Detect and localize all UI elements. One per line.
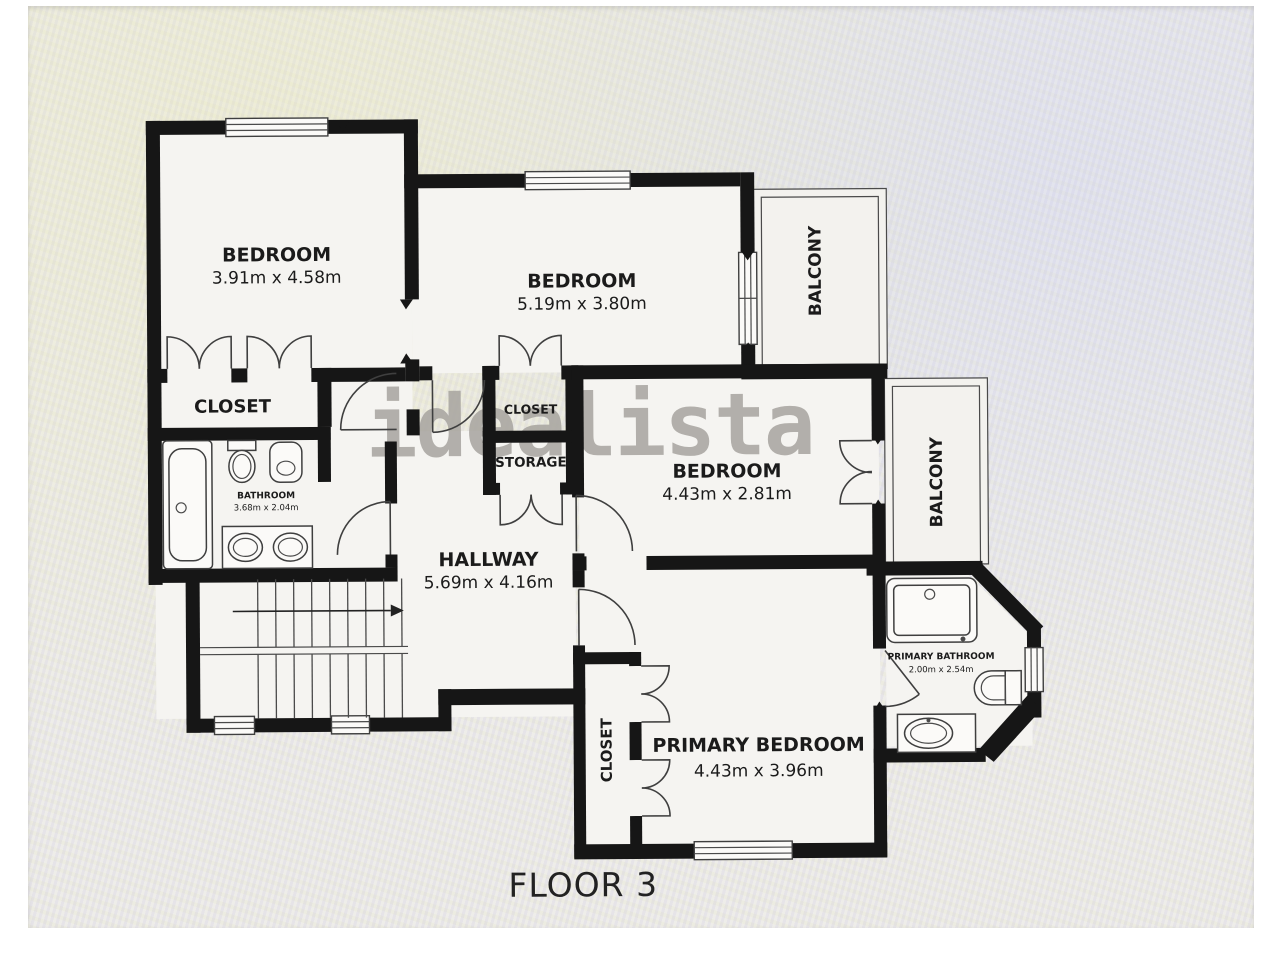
- room-dims-primary-bathroom: 2.00m x 2.54m: [909, 665, 974, 675]
- wall: [630, 172, 740, 187]
- stair-direction-line: [233, 611, 391, 612]
- wall: [573, 570, 585, 587]
- wall: [482, 366, 499, 380]
- room-dims-bedroom1: 3.91m x 4.58m: [212, 268, 342, 289]
- room-label-hallway: HALLWAY: [438, 549, 538, 572]
- wall: [438, 688, 585, 705]
- wall: [254, 718, 331, 732]
- room-label-balcony-top: BALCONY: [805, 225, 826, 316]
- toilet-tank: [228, 440, 256, 450]
- floor-caption: FLOOR 3: [508, 865, 658, 905]
- bathtub-inner: [169, 449, 207, 561]
- room-label-balcony-right: BALCONY: [927, 436, 948, 527]
- wall: [572, 556, 586, 570]
- wall: [1027, 625, 1041, 650]
- wall: [571, 365, 584, 497]
- wall: [231, 368, 247, 382]
- wall: [483, 430, 579, 443]
- wall: [317, 368, 331, 427]
- sink-icon: [904, 718, 952, 748]
- wall: [873, 705, 887, 856]
- toilet-tank: [1005, 671, 1021, 705]
- room-label-closet-hall: CLOSET: [504, 402, 558, 417]
- wall: [646, 555, 885, 570]
- wall: [318, 427, 331, 482]
- wall: [873, 569, 886, 649]
- wall: [483, 483, 500, 495]
- wall: [146, 121, 163, 585]
- room-label-bedroom1: BEDROOM: [222, 244, 331, 267]
- room-label-closet-primary: CLOSET: [597, 717, 615, 782]
- window: [694, 841, 792, 860]
- wall: [792, 842, 887, 858]
- wall: [867, 561, 983, 576]
- wall: [629, 652, 641, 666]
- window: [525, 171, 630, 190]
- room-label-storage: STORAGE: [495, 454, 567, 470]
- wall: [407, 409, 420, 435]
- room-label-bathroom: BATHROOM: [237, 491, 295, 501]
- wall: [871, 364, 884, 441]
- room-dims-bedroom2: 5.19m x 3.80m: [517, 294, 647, 315]
- wall: [571, 364, 884, 380]
- sink-faucet: [926, 718, 930, 722]
- floorplan-drawing: idealista: [0, 0, 1280, 960]
- wall: [574, 844, 694, 860]
- window: [331, 716, 369, 734]
- floorplan-page: idealista: [0, 0, 1280, 960]
- room-dims-primary-bedroom: 4.43m x 3.96m: [694, 761, 824, 782]
- window: [214, 716, 254, 734]
- room-label-primary-bedroom: PRIMARY BEDROOM: [652, 734, 864, 757]
- room-label-bedroom2: BEDROOM: [527, 270, 636, 293]
- room-dims-bathroom: 3.68m x 2.04m: [234, 503, 299, 513]
- bidet-icon: [270, 442, 302, 482]
- wall: [385, 554, 397, 567]
- wall: [404, 174, 525, 189]
- room-label-primary-bathroom: PRIMARY BATHROOM: [888, 652, 995, 663]
- wall: [186, 719, 214, 733]
- wall: [872, 504, 885, 569]
- wall: [404, 119, 419, 299]
- shower-faucet: [960, 637, 965, 642]
- room-label-closet-bedroom1: CLOSET: [194, 396, 272, 417]
- wall: [186, 569, 201, 733]
- wall: [629, 722, 641, 760]
- window: [1025, 648, 1043, 692]
- window: [226, 118, 328, 137]
- room-dims-hallway: 5.69m x 4.16m: [424, 573, 554, 594]
- wall: [147, 369, 167, 383]
- room-dims-bedroom3: 4.43m x 2.81m: [662, 484, 792, 505]
- room-label-bedroom3: BEDROOM: [672, 460, 781, 483]
- wall: [740, 172, 755, 256]
- shower-tub-inner: [894, 585, 970, 635]
- wall: [419, 366, 432, 380]
- wall: [385, 441, 397, 503]
- wall: [148, 427, 331, 441]
- wall: [573, 645, 586, 858]
- balcony-door-window: [739, 252, 758, 344]
- wall: [630, 816, 642, 845]
